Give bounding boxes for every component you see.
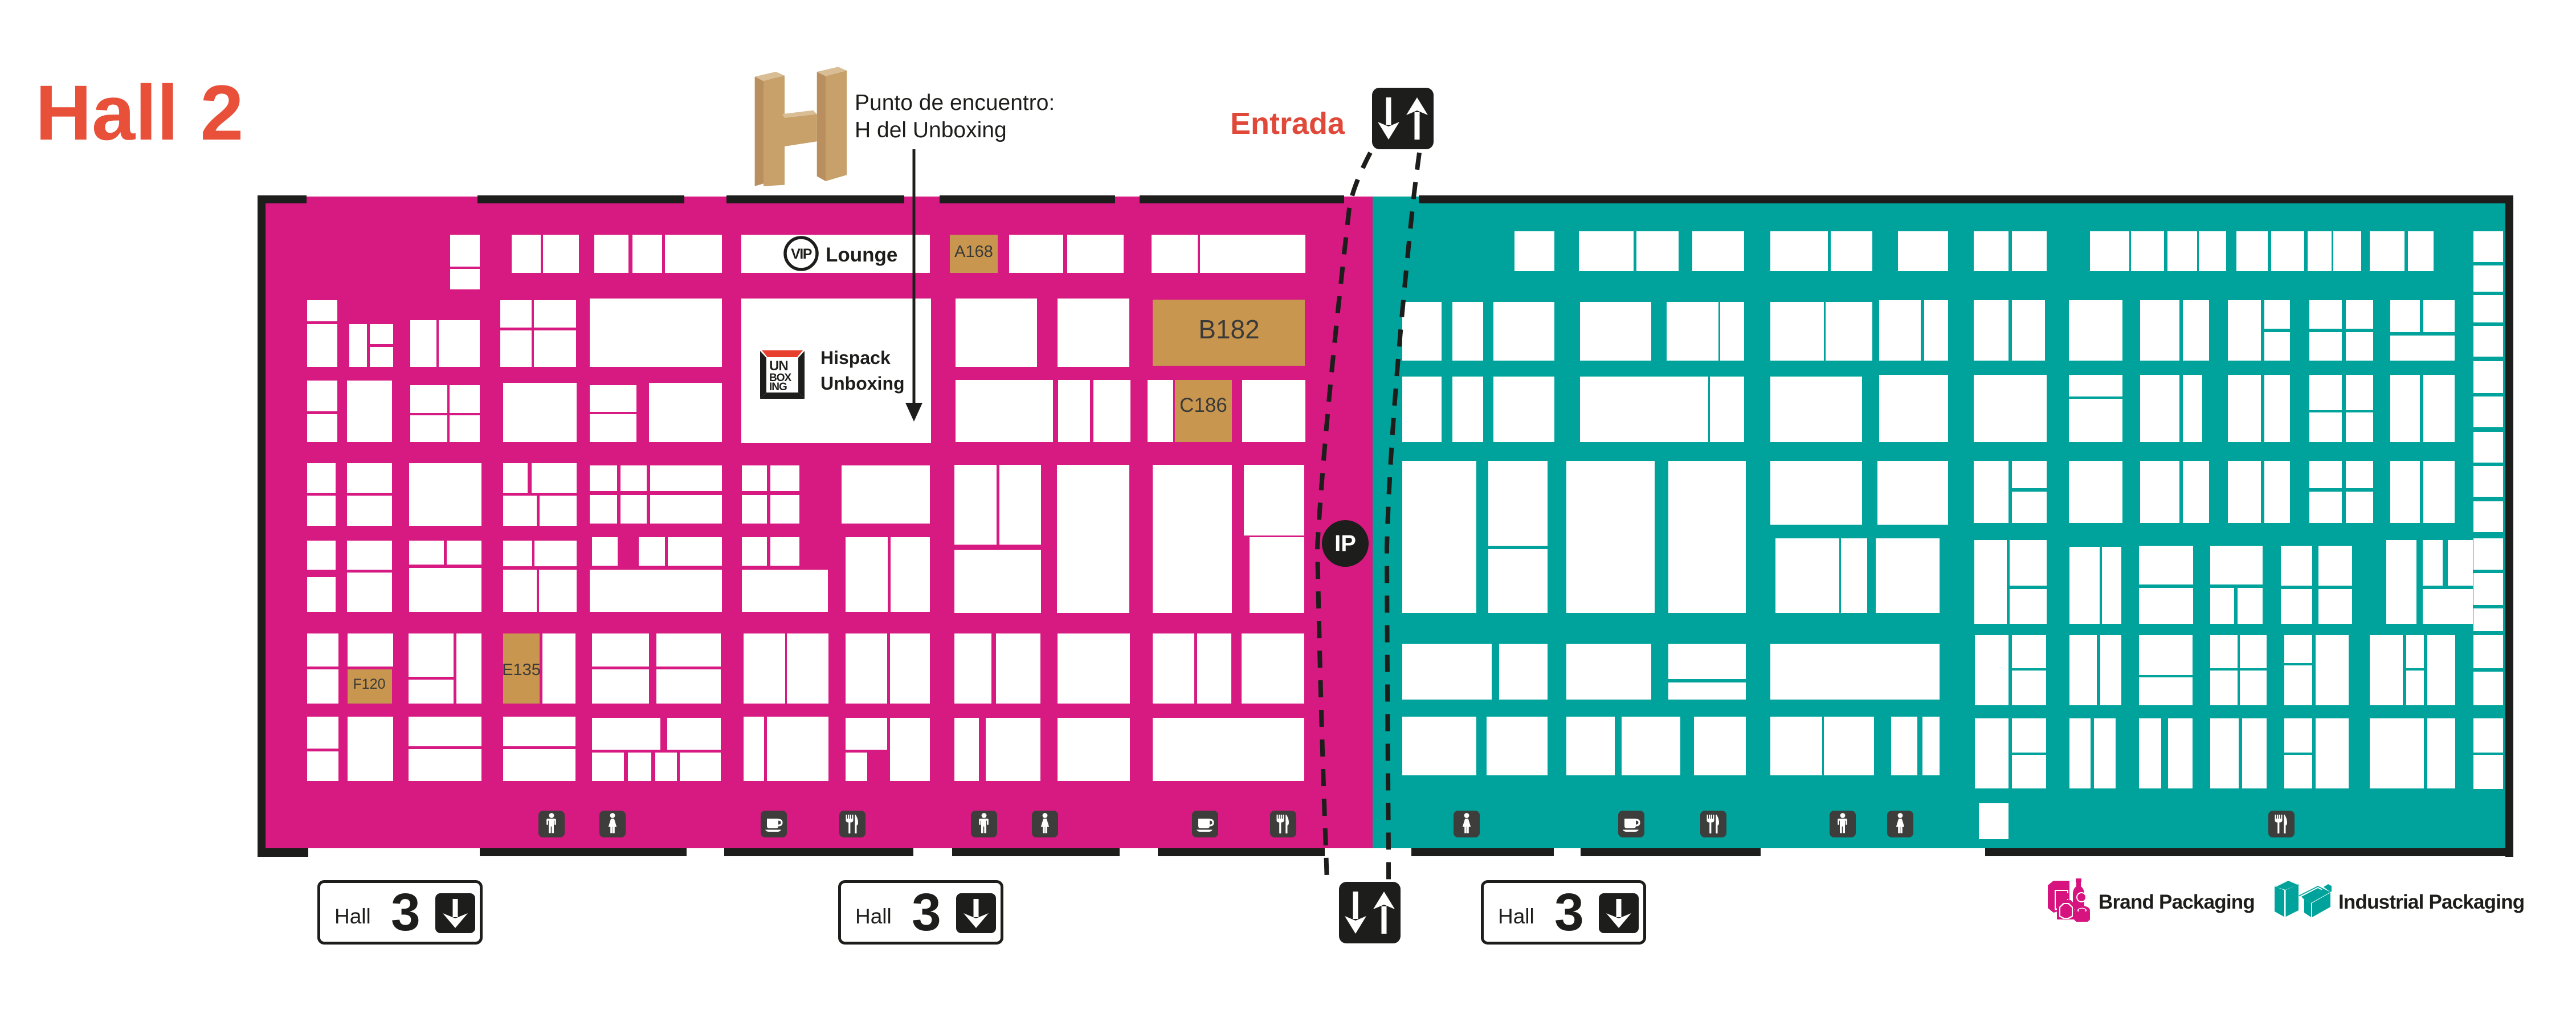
svg-text:ING: ING — [769, 381, 787, 393]
svg-text:UN: UN — [769, 358, 788, 374]
svg-text:VIP: VIP — [791, 246, 812, 262]
